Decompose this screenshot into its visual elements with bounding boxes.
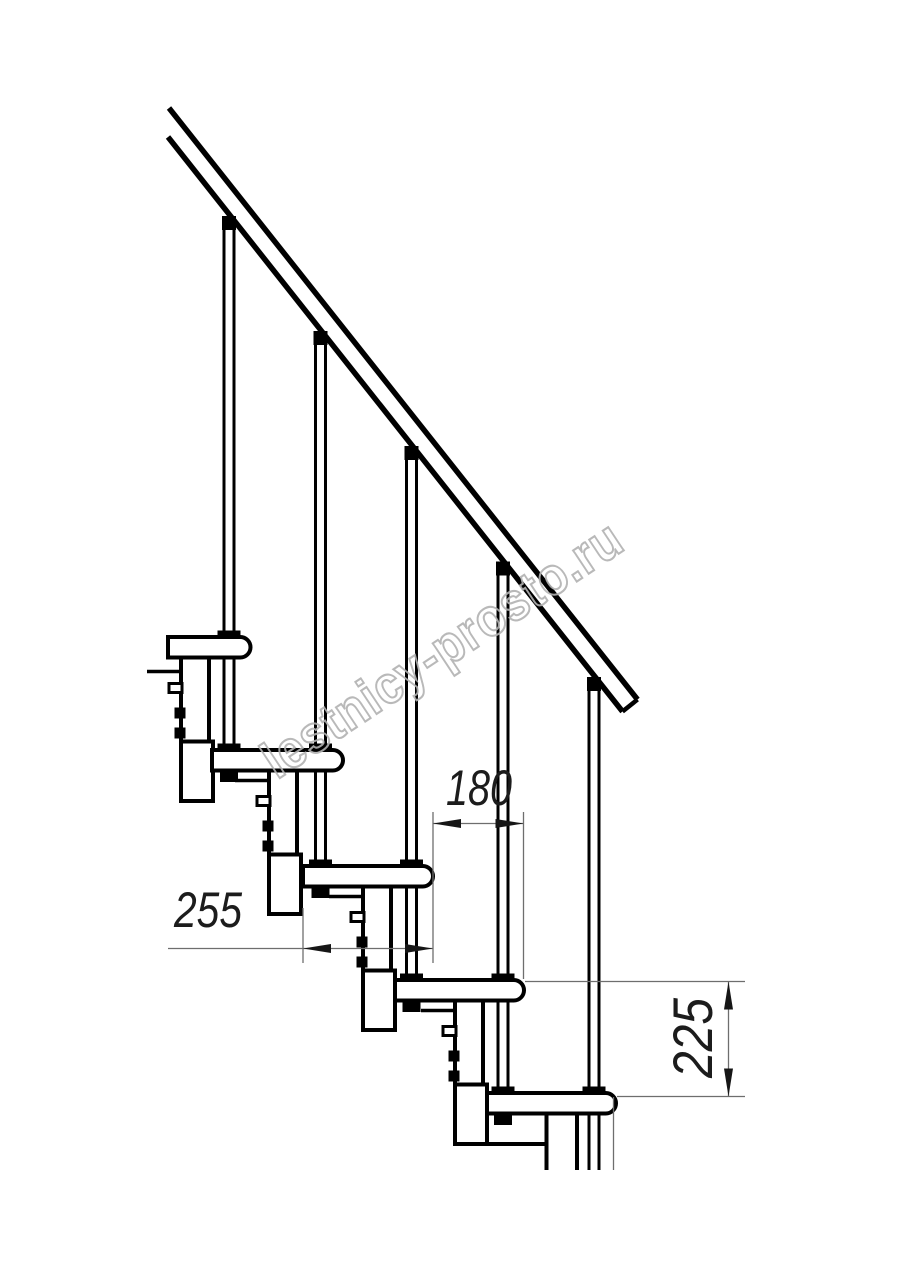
module-bracket [443,1027,456,1036]
module-bolt [357,957,368,968]
tread [168,637,251,658]
dim-tread-depth-label: 255 [173,882,242,938]
arrow-up [724,982,733,1010]
dimension-step-run: 180 [433,760,524,979]
handrail-lower-edge [168,137,623,712]
rail-connector [587,677,601,691]
module-lower-body [269,855,301,915]
baluster-rod [316,343,326,864]
rail-connector [222,216,236,230]
spine-module [421,1001,547,1145]
handrail-end-cap [623,700,638,712]
drawing-canvas: 255 180 225 lestnicy-prosto.ru [0,0,914,1280]
rod-nut [403,1002,421,1012]
module-bracket [257,797,270,806]
tread [395,980,524,1001]
spine-module [147,658,213,802]
rod-base-plate [492,1087,515,1094]
arrow-left [303,944,331,953]
handrail-upper-edge [169,108,638,700]
rod-base-plate [400,860,423,867]
module-bolt [263,841,274,852]
rod-nut [312,888,330,898]
module-bolt [263,821,274,832]
staircase-drawing: 255 180 225 lestnicy-prosto.ru [0,0,914,1280]
baluster-rod [224,228,234,748]
rod-nut [494,1115,512,1125]
spine-module [329,887,395,1031]
handrail [168,108,638,712]
dimension-step-rise: 225 [525,982,745,1171]
tread [487,1093,616,1114]
dim-step-rise-label: 225 [661,997,724,1079]
dim-step-run-label: 180 [446,760,512,816]
rail-connector [314,331,328,345]
spine-module-partial [547,1114,578,1171]
baluster-rod [498,573,508,1091]
module-bolt [357,937,368,948]
rod-base-plate [583,1087,606,1094]
module-lower-body [455,1085,487,1145]
rod-base-plate [309,860,332,867]
module-lower-body [363,971,395,1031]
rod-base-plate [218,744,241,751]
rod-nut [220,772,238,782]
module-bolt [175,728,186,739]
tread [303,866,433,887]
module-bracket [169,684,182,693]
rod-base-plate [492,974,515,981]
spine-module [235,771,301,915]
arrow-right [405,944,433,953]
rod-base-plate [218,631,241,638]
module-bolt [449,1071,460,1082]
module-bolt [449,1051,460,1062]
module-bracket [351,913,364,922]
arrow-down [724,1069,733,1097]
module-bolt [175,708,186,719]
baluster-rod [407,458,417,978]
module-lower-body [181,742,213,802]
arrow-left [433,819,461,828]
rod-base-plate [400,974,423,981]
rail-connector [405,446,419,460]
